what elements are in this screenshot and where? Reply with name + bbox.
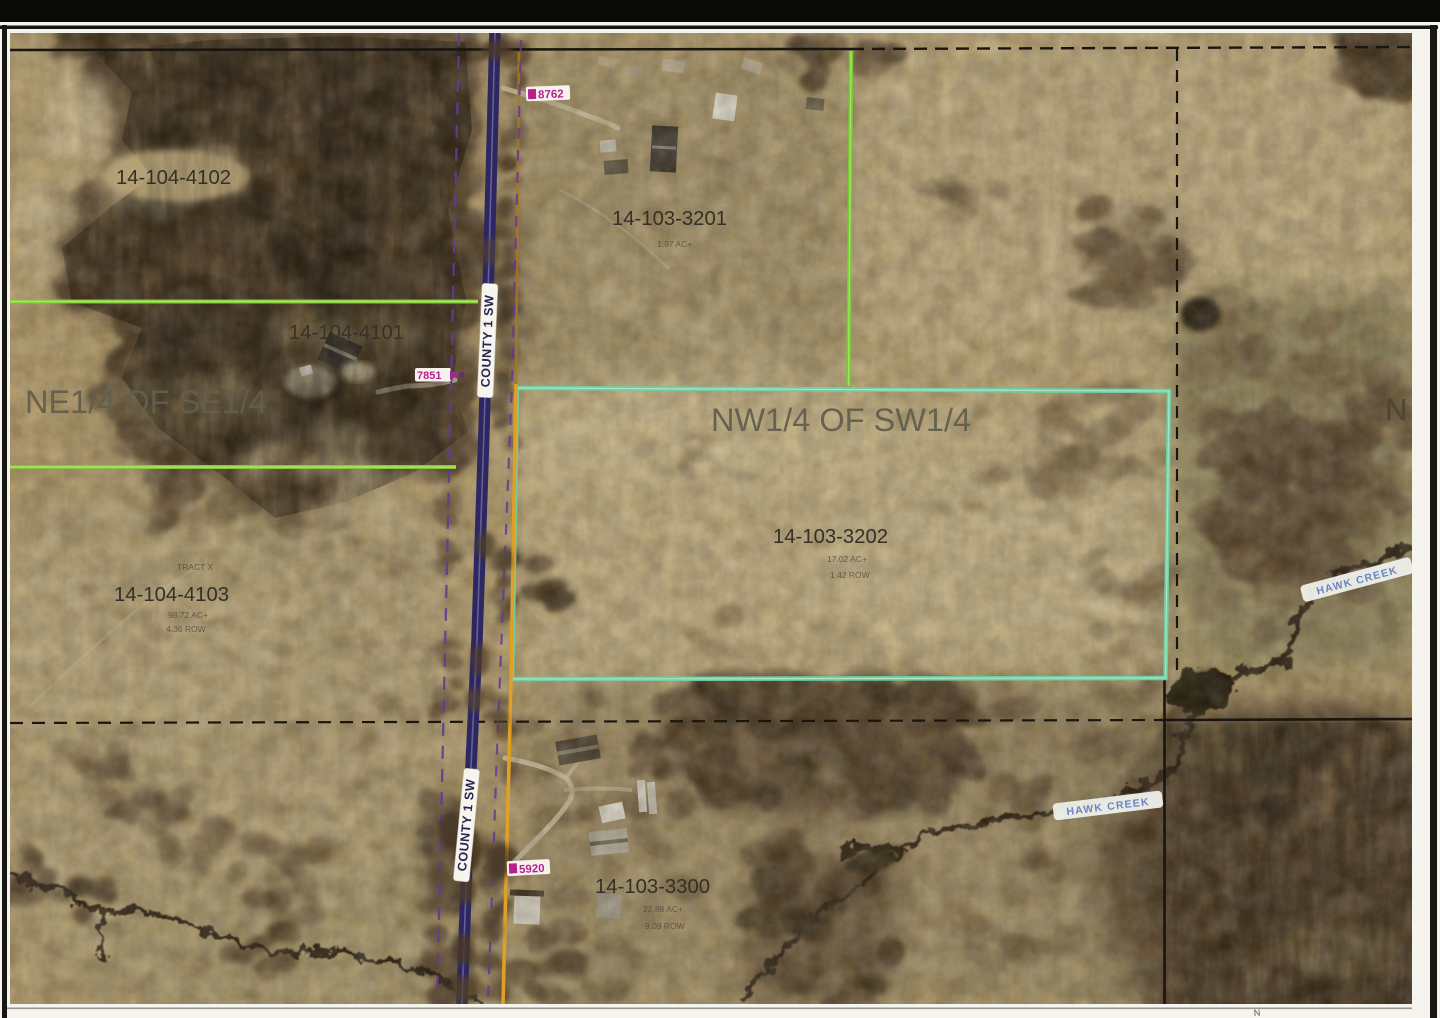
svg-text:14-103-3202: 14-103-3202 (773, 526, 888, 548)
svg-text:4.36 ROW: 4.36 ROW (166, 624, 206, 634)
svg-text:14-103-3300: 14-103-3300 (595, 876, 710, 898)
svg-text:N: N (1253, 1008, 1260, 1018)
svg-text:98.72 AC+: 98.72 AC+ (168, 610, 208, 620)
svg-text:14-103-3201: 14-103-3201 (612, 208, 727, 230)
svg-text:8762: 8762 (538, 88, 564, 101)
svg-text:TRACT X: TRACT X (177, 562, 214, 572)
svg-text:NW1/4 OF SW1/4: NW1/4 OF SW1/4 (711, 402, 971, 438)
svg-text:NE1/4 OF SE1/4: NE1/4 OF SE1/4 (25, 384, 267, 420)
svg-text:9.09 ROW: 9.09 ROW (645, 921, 685, 931)
svg-text:5920: 5920 (519, 863, 545, 876)
svg-text:14-104-4103: 14-104-4103 (114, 584, 229, 606)
svg-text:1.97 AC+: 1.97 AC+ (657, 239, 692, 249)
svg-text:22.88 AC+: 22.88 AC+ (643, 904, 683, 914)
svg-text:7851: 7851 (417, 370, 441, 382)
svg-text:17.02 AC+: 17.02 AC+ (827, 554, 867, 564)
svg-text:14-104-4101: 14-104-4101 (289, 322, 404, 344)
svg-text:1.42 ROW: 1.42 ROW (830, 570, 870, 580)
svg-text:14-104-4102: 14-104-4102 (116, 167, 231, 189)
svg-text:N: N (1385, 392, 1407, 427)
